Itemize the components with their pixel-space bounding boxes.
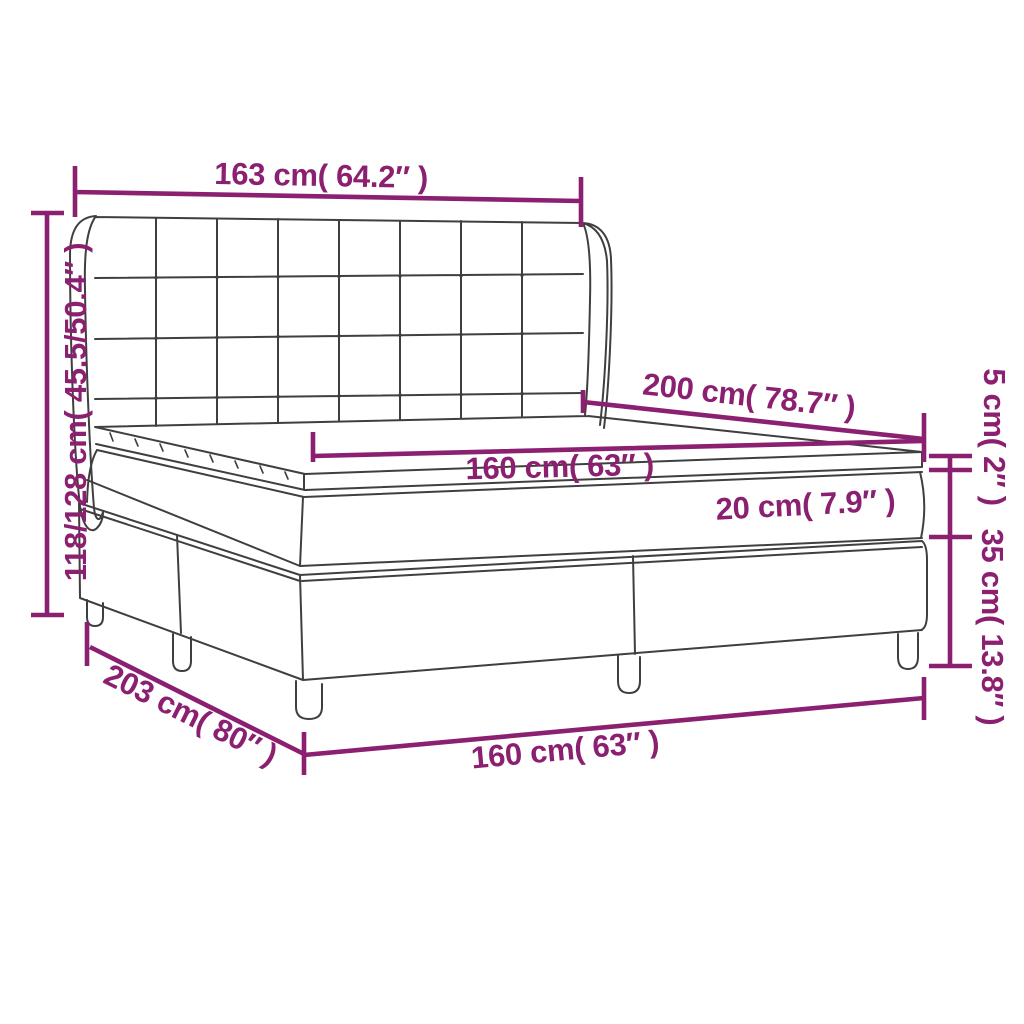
dim-right-heights-line [929,456,972,666]
dim-mattress-width-label: 160 cm( 63″ ) [465,447,654,487]
dim-right-heights: 5 cm( 2″ ) 35 cm( 13.8″ ) [929,368,1012,725]
dim-bed-length-label: 200 cm( 78.7″ ) [641,366,857,424]
topper-stitch-ticks [110,433,288,479]
dim-total-height: 118/128 cm( 45.5/50.4″ ) [31,213,93,615]
dim-base-length: 203 cm( 80″ ) [87,622,304,775]
bed-dimension-diagram: 163 cm( 64.2″ ) 118/128 cm( 45.5/50.4″ )… [0,0,1024,1024]
dim-headboard-width: 163 cm( 64.2″ ) [75,156,581,227]
dim-base-width: 160 cm( 63″ ) [304,677,924,776]
dim-topper-thickness-label: 5 cm( 2″ ) [977,368,1012,506]
dim-headboard-width-label: 163 cm( 64.2″ ) [214,156,428,195]
dim-base-length-label: 203 cm( 80″ ) [99,657,283,772]
dim-base-height-label: 35 cm( 13.8″ ) [975,529,1010,726]
diagram-canvas: 163 cm( 64.2″ ) 118/128 cm( 45.5/50.4″ )… [0,0,1024,1024]
dim-mattress-width: 160 cm( 63″ ) [313,432,923,486]
box-spring-base [79,503,927,680]
dim-mattress-thickness-label: 20 cm( 7.9″ ) [715,482,896,526]
dim-base-width-label: 160 cm( 63″ ) [470,724,661,776]
dim-total-height-label: 118/128 cm( 45.5/50.4″ ) [58,243,93,582]
bed-legs [87,600,918,719]
